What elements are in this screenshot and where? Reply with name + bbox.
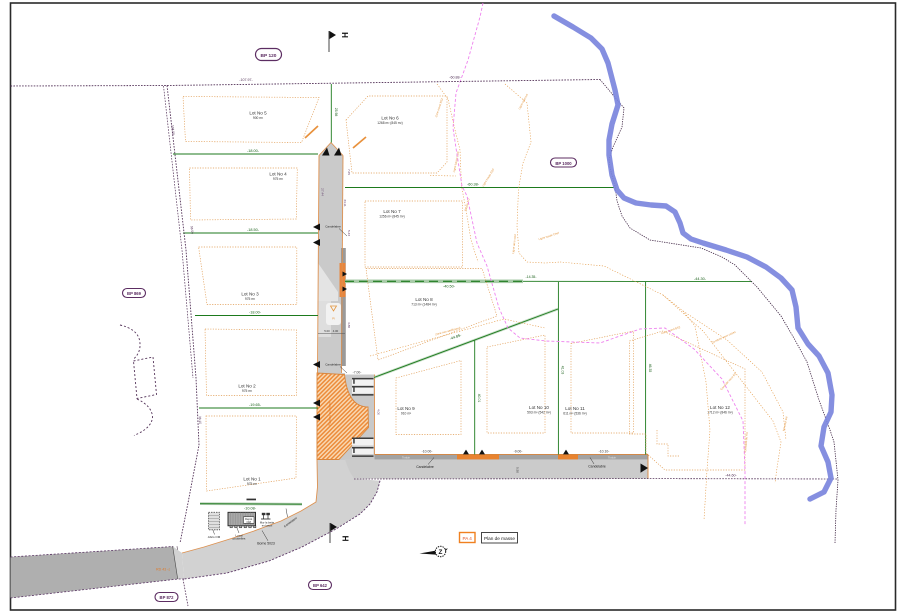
svg-text:H: H	[340, 32, 349, 38]
svg-text:-9.00-: -9.00-	[514, 450, 523, 454]
svg-text:Candelabre: Candelabre	[325, 363, 341, 367]
svg-text:Plan de masse: Plan de masse	[484, 536, 515, 541]
svg-text:34.11: 34.11	[343, 199, 347, 207]
svg-text:Lot No 10: Lot No 10	[529, 405, 549, 410]
svg-text:38.10: 38.10	[198, 416, 202, 424]
svg-text:4.00: 4.00	[333, 329, 339, 333]
svg-text:Z: Z	[439, 549, 443, 556]
svg-text:Lot No 11: Lot No 11	[565, 406, 585, 411]
svg-text:Borne 5023: Borne 5023	[257, 542, 275, 546]
svg-text:Lot No 7: Lot No 7	[383, 209, 401, 214]
svg-text:OM: OM	[247, 520, 252, 524]
svg-text:H: H	[340, 536, 349, 542]
svg-text:1712 m² (846 m²): 1712 m² (846 m²)	[707, 411, 732, 415]
svg-text:en beton: en beton	[262, 524, 273, 528]
svg-text:-7.00-: -7.00-	[353, 371, 362, 375]
svg-text:poubelles: poubelles	[233, 537, 246, 541]
svg-text:BP 120: BP 120	[261, 53, 277, 59]
svg-text:-18.00-: -18.00-	[247, 149, 260, 153]
svg-text:5.50: 5.50	[516, 467, 520, 473]
svg-text:1268 m² (845 m²): 1268 m² (845 m²)	[377, 121, 402, 125]
svg-text:Lot No 12: Lot No 12	[710, 405, 730, 410]
svg-text:BP 869: BP 869	[127, 291, 142, 296]
svg-text:RD 43 ◁: RD 43 ◁	[156, 568, 171, 572]
svg-text:25.98: 25.98	[334, 108, 338, 117]
svg-text:7.25: 7.25	[347, 169, 351, 175]
svg-text:Trottoir: Trottoir	[402, 457, 410, 460]
svg-text:Candelabre: Candelabre	[325, 224, 341, 228]
svg-text:-10.00-: -10.00-	[422, 450, 433, 454]
svg-text:-44.60-: -44.60-	[725, 474, 737, 478]
svg-text:-18.00-: -18.00-	[249, 311, 262, 315]
svg-text:Lot No 3: Lot No 3	[241, 292, 259, 297]
svg-text:-10.10-: -10.10-	[599, 450, 610, 454]
svg-text:-44.30-: -44.30-	[694, 277, 707, 281]
svg-text:593 m² (542 m²): 593 m² (542 m²)	[527, 411, 551, 415]
svg-text:40.01: 40.01	[477, 394, 481, 403]
svg-text:-10.08-: -10.08-	[244, 507, 257, 511]
svg-text:Lot No 4: Lot No 4	[269, 172, 287, 177]
svg-text:5.00: 5.00	[324, 329, 330, 333]
svg-text:975 m²: 975 m²	[247, 482, 258, 486]
svg-text:910 m²: 910 m²	[401, 412, 412, 416]
svg-text:-19.65-: -19.65-	[249, 403, 262, 407]
svg-text:-40.50-: -40.50-	[443, 285, 456, 289]
svg-text:4.00: 4.00	[377, 409, 381, 415]
svg-text:4.88: 4.88	[347, 322, 351, 328]
svg-text:-60.88-: -60.88-	[449, 76, 461, 80]
svg-text:Lot No 6: Lot No 6	[381, 116, 399, 121]
svg-text:1256 m² (845 m²): 1256 m² (845 m²)	[379, 215, 404, 219]
svg-text:46.35: 46.35	[648, 364, 652, 373]
svg-text:-60.38-: -60.38-	[467, 183, 480, 187]
svg-text:611 m² (536 m²): 611 m² (536 m²)	[563, 412, 586, 416]
svg-text:5.43: 5.43	[347, 230, 351, 236]
svg-text:-18.50-: -18.50-	[247, 228, 260, 232]
svg-text:Candelabre: Candelabre	[588, 465, 606, 469]
svg-text:Plateau sureleve: Plateau sureleve	[328, 402, 332, 426]
svg-text:Lot No 1: Lot No 1	[243, 477, 261, 482]
svg-text:BP 642: BP 642	[313, 583, 328, 588]
svg-text:27.44: 27.44	[321, 188, 325, 196]
svg-text:-14.35-: -14.35-	[525, 275, 537, 279]
svg-text:41.03: 41.03	[561, 366, 565, 375]
svg-text:104.50: 104.50	[171, 125, 176, 135]
svg-text:Lot No 9: Lot No 9	[397, 406, 415, 411]
svg-text:58.50: 58.50	[190, 226, 195, 235]
svg-text:975 m²: 975 m²	[245, 297, 256, 301]
svg-text:975 m²: 975 m²	[242, 389, 253, 393]
svg-text:Candelabre: Candelabre	[416, 465, 434, 469]
svg-text:Abris OM: Abris OM	[208, 535, 221, 539]
svg-text:PA 4: PA 4	[463, 536, 473, 541]
svg-text:900 m²: 900 m²	[253, 116, 264, 120]
svg-text:975 m²: 975 m²	[273, 177, 284, 181]
svg-text:PI: PI	[332, 317, 335, 321]
svg-text:-107.97-: -107.97-	[239, 78, 253, 82]
svg-text:Lot No 8: Lot No 8	[415, 297, 433, 302]
svg-text:BP 872: BP 872	[160, 595, 175, 600]
svg-text:Lot No 2: Lot No 2	[238, 384, 256, 389]
svg-text:BP 1000: BP 1000	[555, 161, 572, 166]
svg-text:Lot No 5: Lot No 5	[249, 111, 267, 116]
svg-text:713 m² (1484 m²): 713 m² (1484 m²)	[411, 303, 436, 307]
svg-text:Trottoir: Trottoir	[608, 457, 616, 460]
